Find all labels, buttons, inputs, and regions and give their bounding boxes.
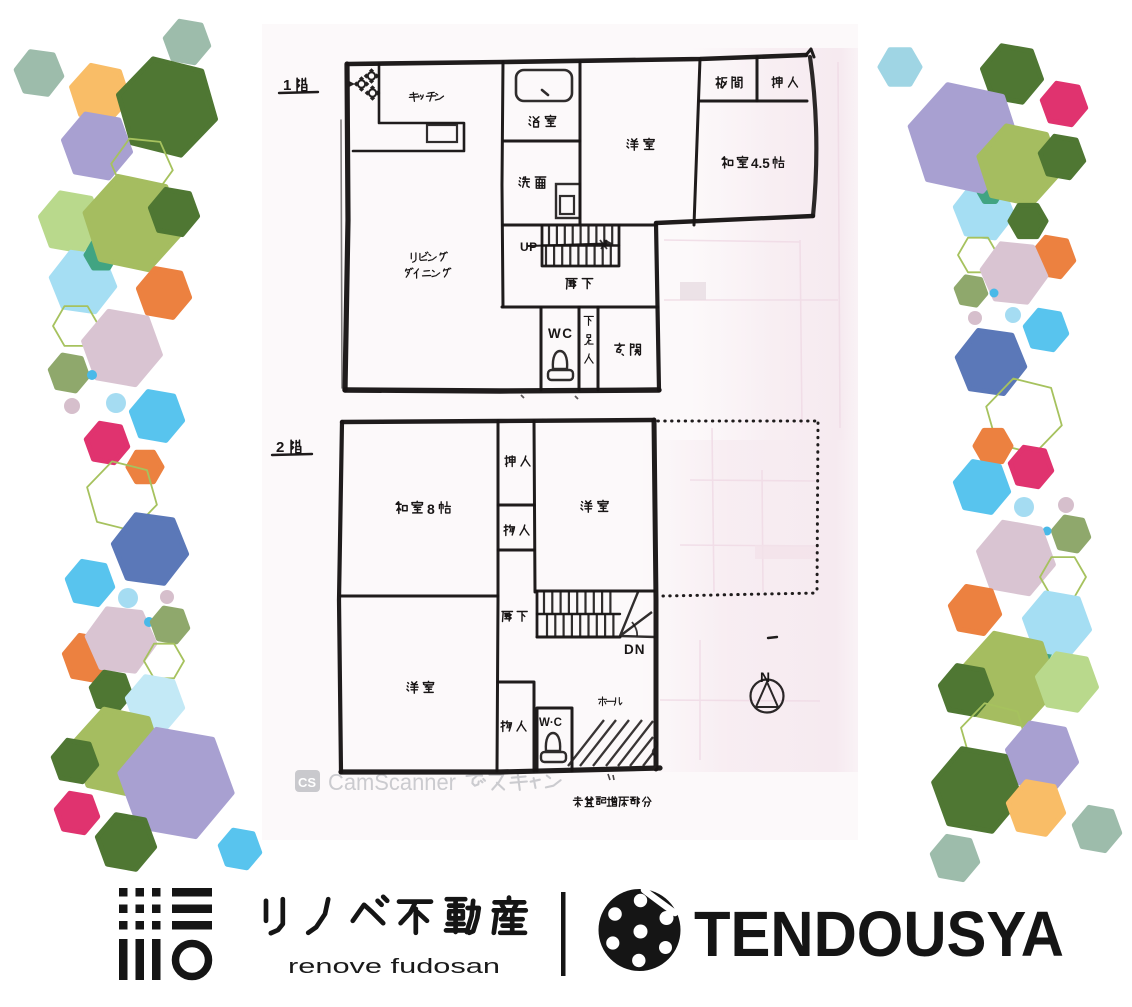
- svg-text:N: N: [760, 669, 770, 685]
- svg-text:4.5: 4.5: [751, 156, 770, 171]
- svg-text:1: 1: [283, 77, 291, 94]
- svg-text:WC: WC: [548, 326, 574, 341]
- svg-text:W·C: W·C: [539, 717, 562, 729]
- svg-text:2: 2: [276, 439, 284, 456]
- svg-text:DN: DN: [624, 642, 646, 657]
- svg-text:TENDOUSYA: TENDOUSYA: [694, 898, 1064, 970]
- svg-text:CS: CS: [298, 775, 316, 790]
- svg-text:renove fudosan: renove fudosan: [288, 956, 500, 978]
- svg-text:UP: UP: [520, 240, 538, 254]
- svg-text:8: 8: [427, 501, 435, 517]
